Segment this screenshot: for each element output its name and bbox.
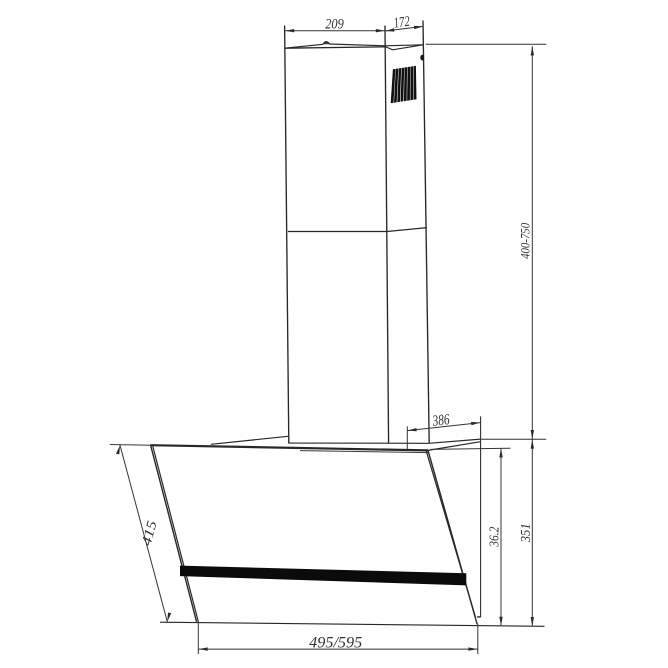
svg-text:400-750: 400-750 [518, 222, 532, 259]
svg-text:351: 351 [518, 523, 533, 543]
svg-text:172: 172 [393, 14, 411, 32]
svg-text:36.2: 36.2 [486, 526, 501, 547]
svg-text:209: 209 [325, 17, 344, 33]
svg-text:495/595: 495/595 [309, 634, 362, 651]
svg-text:386: 386 [431, 411, 451, 430]
